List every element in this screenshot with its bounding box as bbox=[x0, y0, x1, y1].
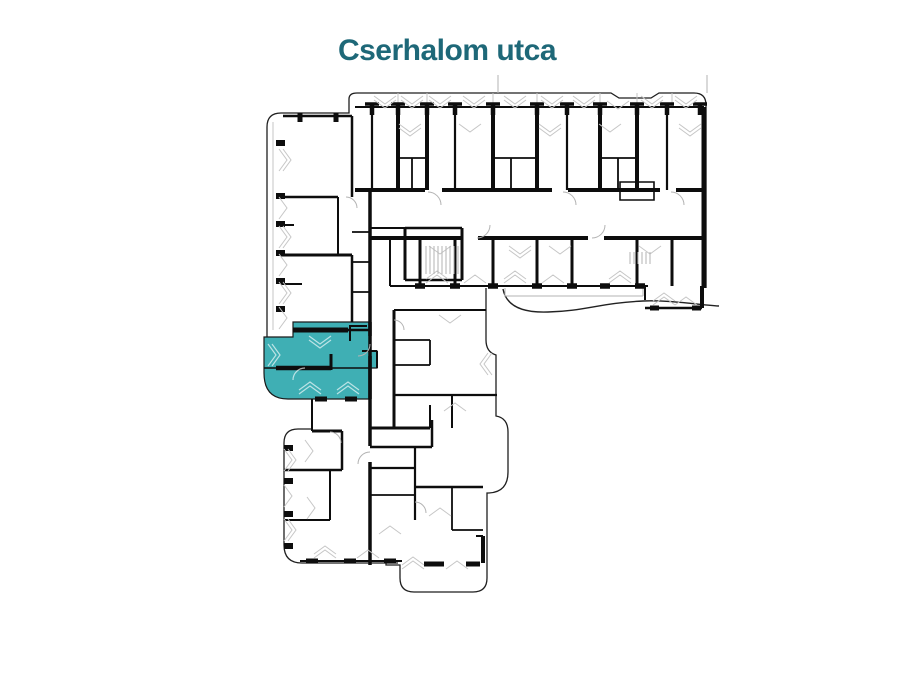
window-chevrons-left bbox=[279, 149, 291, 329]
window-chevrons-bottom-left bbox=[284, 449, 296, 541]
window-chevrons-rooms-top bbox=[399, 124, 701, 136]
floorplan-page: Cserhalom utca bbox=[0, 0, 900, 700]
door-arcs bbox=[330, 192, 684, 513]
highlighted-unit[interactable] bbox=[264, 322, 377, 399]
window-chevrons-south-rooms bbox=[429, 246, 661, 258]
highlighted-unit-area[interactable] bbox=[264, 322, 377, 399]
floorplan-svg bbox=[0, 0, 900, 700]
